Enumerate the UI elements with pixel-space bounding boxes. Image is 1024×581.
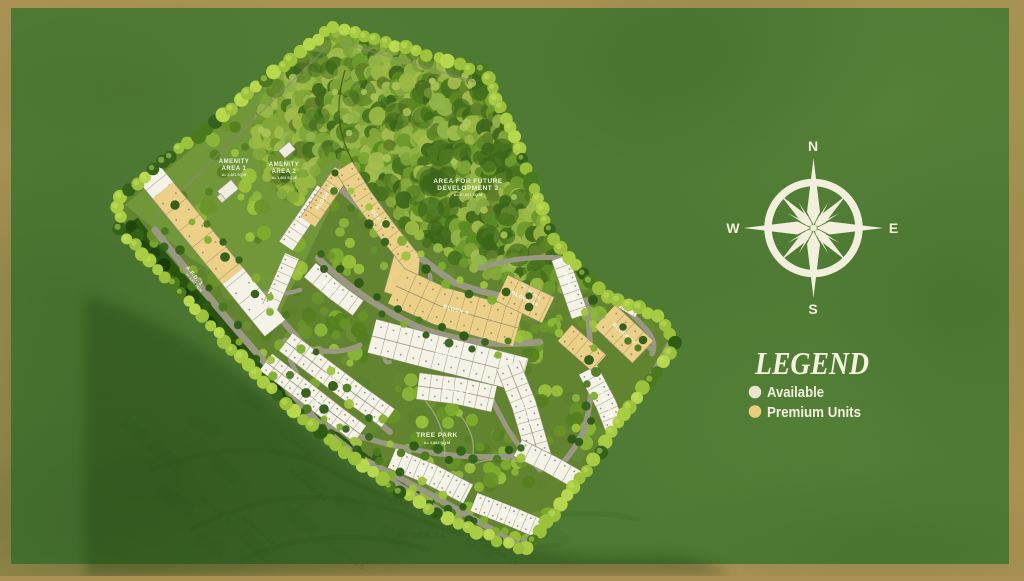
svg-text:W: W [726, 220, 740, 236]
svg-text:DEVELOPMENT 2: DEVELOPMENT 2 [437, 185, 498, 192]
svg-text:LEGEND: LEGEND [754, 345, 869, 381]
svg-text:AMENITY: AMENITY [219, 159, 250, 165]
svg-text:A= 4,882 SQ.M: A= 4,882 SQ.M [424, 441, 450, 445]
svg-text:A= 27,061 SQ.M: A= 27,061 SQ.M [454, 193, 482, 197]
svg-text:Premium Units: Premium Units [767, 404, 861, 421]
svg-text:A= 1,863 SQ.M: A= 1,863 SQ.M [272, 176, 297, 180]
svg-text:N: N [808, 138, 818, 154]
svg-text:AREA 1: AREA 1 [222, 166, 247, 172]
svg-text:AREA FOR FUTURE: AREA FOR FUTURE [433, 178, 503, 185]
svg-text:E: E [889, 220, 898, 236]
svg-text:Available: Available [767, 384, 824, 401]
svg-text:AMENITY: AMENITY [269, 162, 300, 168]
svg-text:A= 2,481 SQ.M: A= 2,481 SQ.M [222, 173, 247, 177]
svg-text:S: S [808, 301, 817, 317]
svg-text:BLOCK 14: BLOCK 14 [398, 531, 446, 540]
svg-text:TREE PARK: TREE PARK [416, 432, 458, 439]
svg-text:AREA 2: AREA 2 [272, 169, 297, 175]
